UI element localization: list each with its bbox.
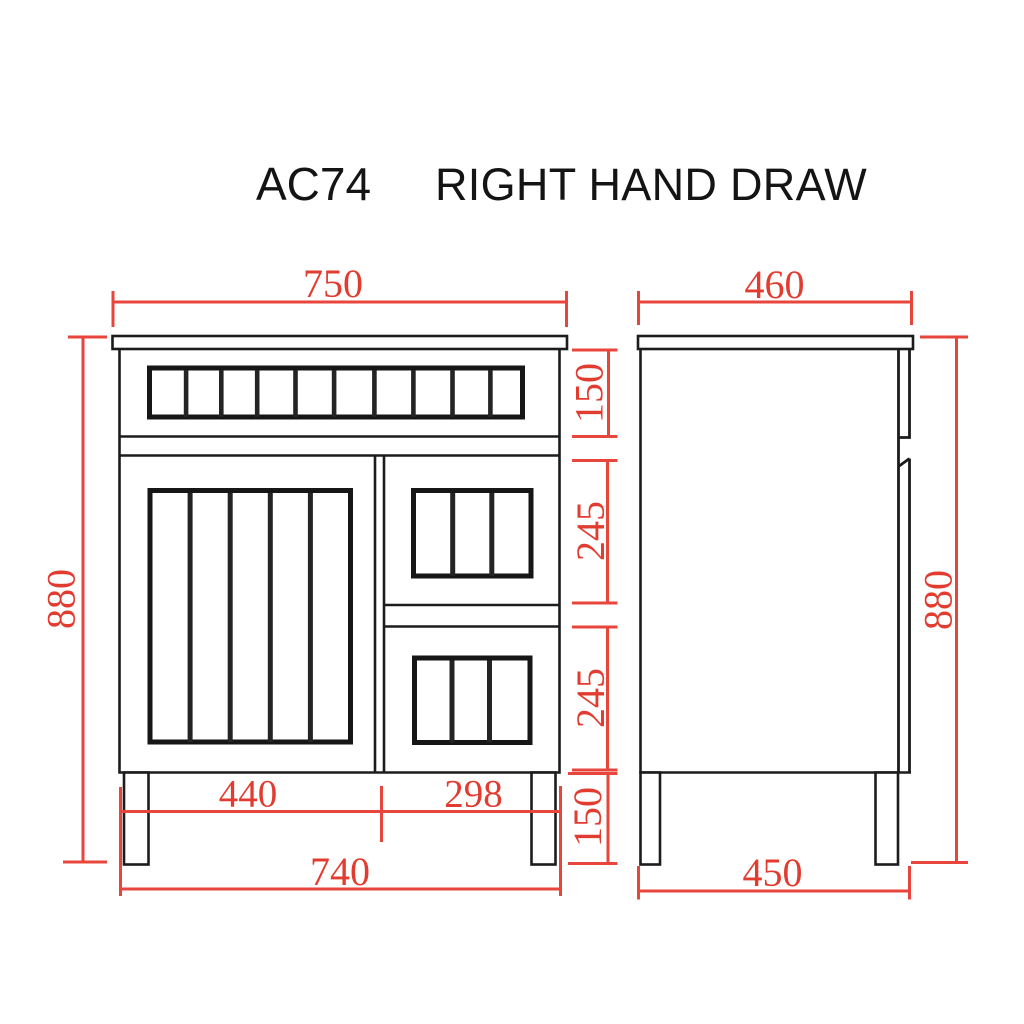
svg-text:460: 460: [745, 262, 805, 307]
svg-text:450: 450: [743, 850, 803, 895]
svg-text:440: 440: [219, 773, 278, 816]
svg-text:750: 750: [303, 261, 363, 306]
svg-text:RIGHT HAND DRAW: RIGHT HAND DRAW: [435, 159, 867, 210]
svg-text:880: 880: [39, 569, 84, 629]
svg-text:245: 245: [568, 501, 613, 561]
svg-text:740: 740: [310, 849, 370, 894]
svg-text:880: 880: [916, 570, 961, 630]
svg-text:298: 298: [444, 773, 503, 816]
svg-text:150: 150: [565, 787, 610, 847]
svg-text:150: 150: [567, 363, 612, 423]
svg-text:AC74: AC74: [256, 158, 371, 210]
svg-text:245: 245: [568, 668, 613, 728]
